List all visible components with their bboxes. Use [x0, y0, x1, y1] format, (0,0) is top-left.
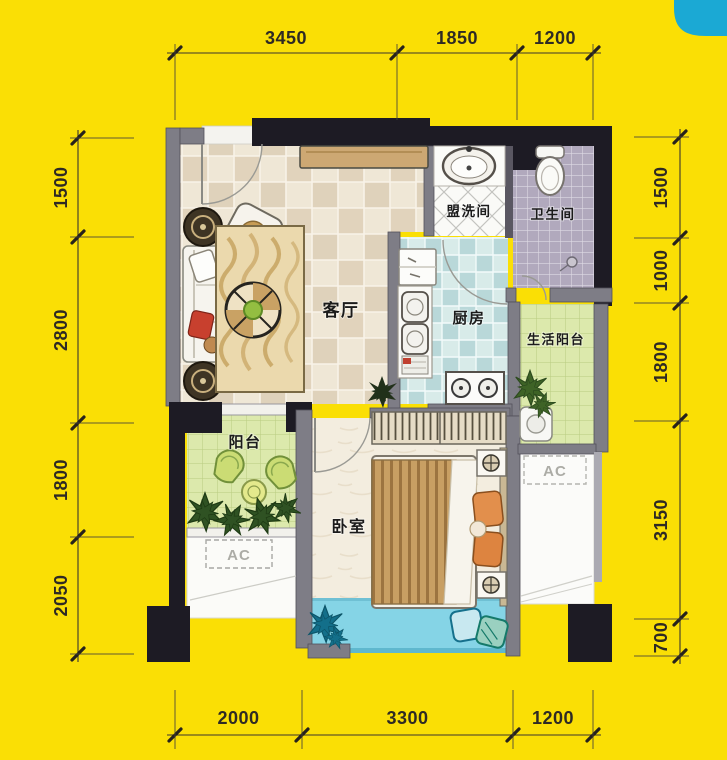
washroom-sink	[434, 146, 505, 186]
dimension-label-left: 1500	[51, 166, 71, 208]
console-cabinet	[300, 146, 428, 168]
balcony-sliding-door	[218, 404, 288, 415]
wall-bay-left	[308, 644, 350, 658]
bed-blanket	[372, 460, 456, 604]
faucet	[466, 146, 472, 152]
dimension-label-right: 1000	[651, 249, 671, 291]
bathroom-label: 卫生间	[531, 206, 576, 222]
dimension-label-top: 3450	[265, 28, 307, 48]
wall-right-mid	[594, 304, 608, 452]
wall-left	[166, 128, 180, 406]
wall-top-left	[180, 128, 204, 144]
floorplan-image: 客厅 盟洗间 卫生间 厨房 生活阳台 阳台 卧室 AC AC 345018501…	[0, 0, 727, 760]
wall-right-lower	[594, 452, 602, 582]
ac-right-label: AC	[543, 463, 567, 480]
wall-balcony-bedroom	[296, 410, 312, 648]
floorplan-svg: 客厅 盟洗间 卫生间 厨房 生活阳台 阳台 卧室 AC AC 345018501…	[0, 0, 727, 760]
kitchen-counter	[398, 286, 432, 378]
balcony-label: 阳台	[228, 433, 261, 451]
bay-cushion-2	[475, 615, 509, 649]
wall-balcony-head-black	[169, 402, 222, 433]
pillow-small	[470, 521, 486, 537]
dimension-label-left: 1800	[51, 459, 71, 501]
dimension-label-right: 1800	[651, 341, 671, 383]
dimension-label-right: 3150	[651, 499, 671, 541]
dimension-label-bottom: 3300	[386, 708, 428, 728]
wall-service-balcony-bottom	[518, 444, 596, 454]
wardrobe	[372, 412, 506, 444]
wall-top-right-black	[428, 126, 612, 146]
kitchen-detail-red	[403, 358, 411, 364]
toilet	[536, 146, 564, 195]
dimension-label-left: 2050	[51, 574, 71, 616]
wall-bathroom-bottom-a	[506, 288, 516, 302]
living-room-label: 客厅	[322, 300, 360, 320]
entry-corridor-floor	[388, 166, 424, 232]
pier-bottom-right	[568, 604, 612, 662]
dimension-label-bottom: 1200	[532, 708, 574, 728]
service-balcony-label: 生活阳台	[527, 332, 585, 347]
wall-top-black	[252, 118, 430, 146]
dimension-label-top: 1850	[436, 28, 478, 48]
nightstand-bottom	[477, 572, 506, 598]
sofa-pillow-red	[188, 310, 215, 340]
dimension-label-right: 1500	[651, 166, 671, 208]
balcony-rail	[187, 528, 301, 537]
kitchen-label: 厨房	[452, 309, 485, 327]
washroom-label: 盟洗间	[447, 203, 492, 219]
wall-balcony-left-black	[169, 433, 185, 607]
ac-left-label: AC	[227, 547, 251, 564]
balcony-table	[242, 480, 266, 504]
stove	[446, 372, 504, 404]
dimension-label-bottom: 2000	[217, 708, 259, 728]
dimension-label-right: 700	[651, 622, 671, 654]
dimension-label-left: 2800	[51, 309, 71, 351]
bay-window-sill	[350, 648, 506, 653]
pier-bottom-left	[147, 606, 190, 662]
kitchen-sink-1	[402, 292, 428, 322]
wall-bathroom-bottom-b	[550, 288, 612, 302]
fridge	[399, 249, 436, 285]
wall-kitchen-right	[508, 302, 520, 416]
kitchen-sink-2	[402, 324, 428, 354]
bedroom-label: 卧室	[331, 517, 366, 536]
wall-right-black	[594, 126, 612, 306]
coffee-table	[226, 283, 280, 337]
wall-washroom-divider	[505, 146, 513, 238]
dimension-label-top: 1200	[534, 28, 576, 48]
nightstand-top	[477, 450, 506, 476]
table-plant	[244, 301, 262, 319]
